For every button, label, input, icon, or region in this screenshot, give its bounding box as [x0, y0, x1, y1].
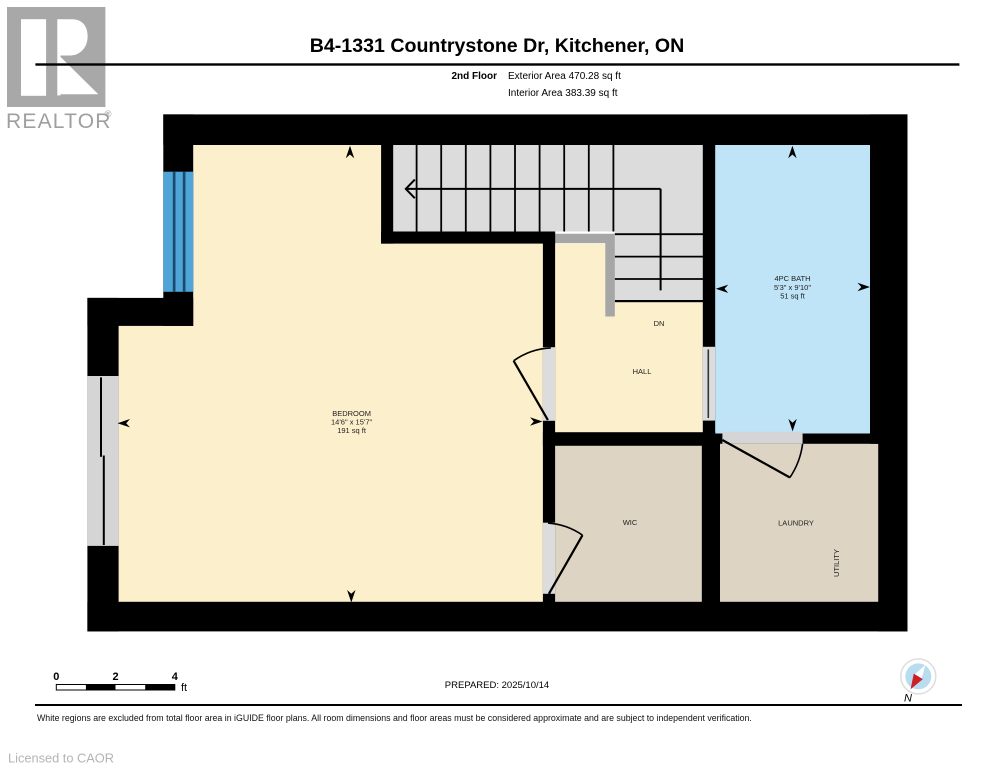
svg-text:Licensed to CAOR: Licensed to CAOR	[8, 751, 114, 766]
svg-text:2nd Floor: 2nd Floor	[451, 71, 497, 82]
svg-text:191 sq ft: 191 sq ft	[337, 426, 367, 435]
svg-text:WIC: WIC	[623, 518, 638, 527]
svg-text:0: 0	[53, 671, 59, 683]
svg-text:HALL: HALL	[633, 367, 652, 376]
svg-text:2: 2	[112, 671, 118, 683]
svg-text:REALTOR: REALTOR	[6, 110, 112, 133]
svg-text:®: ®	[105, 109, 112, 120]
svg-text:PREPARED: 2025/10/14: PREPARED: 2025/10/14	[445, 680, 549, 691]
svg-text:ft: ft	[181, 682, 187, 694]
svg-text:N: N	[904, 693, 912, 705]
svg-text:Exterior Area 470.28 sq ft: Exterior Area 470.28 sq ft	[508, 71, 621, 82]
svg-text:DN: DN	[654, 319, 665, 328]
svg-text:Interior Area 383.39 sq ft: Interior Area 383.39 sq ft	[508, 88, 618, 99]
svg-text:4PC BATH: 4PC BATH	[774, 274, 810, 283]
svg-text:51 sq ft: 51 sq ft	[780, 292, 806, 301]
svg-text:UTILITY: UTILITY	[832, 549, 841, 577]
svg-text:4: 4	[172, 671, 179, 683]
svg-text:LAUNDRY: LAUNDRY	[778, 519, 814, 528]
svg-text:White regions are excluded fro: White regions are excluded from total fl…	[37, 713, 752, 723]
svg-text:B4-1331 Countrystone Dr, Kitch: B4-1331 Countrystone Dr, Kitchener, ON	[310, 35, 685, 57]
